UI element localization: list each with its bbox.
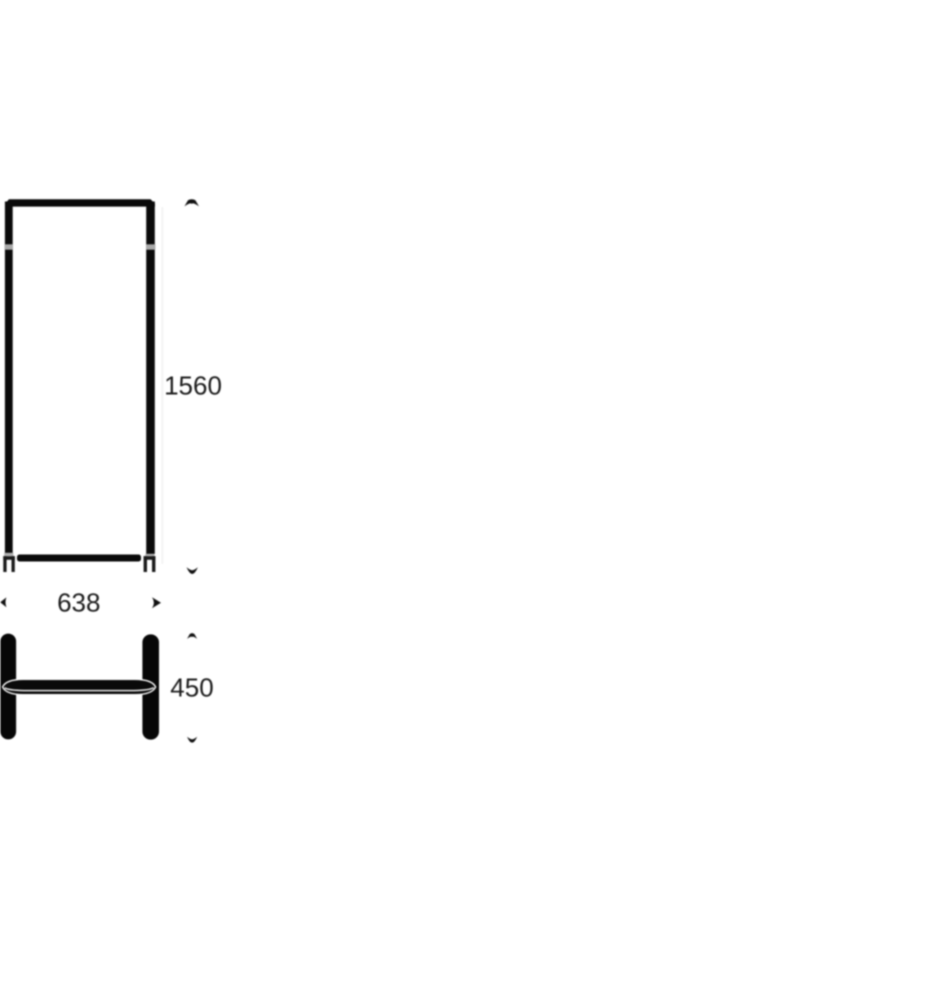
svg-text:638: 638	[57, 588, 100, 618]
svg-text:1560: 1560	[164, 371, 222, 401]
svg-text:450: 450	[170, 672, 213, 702]
